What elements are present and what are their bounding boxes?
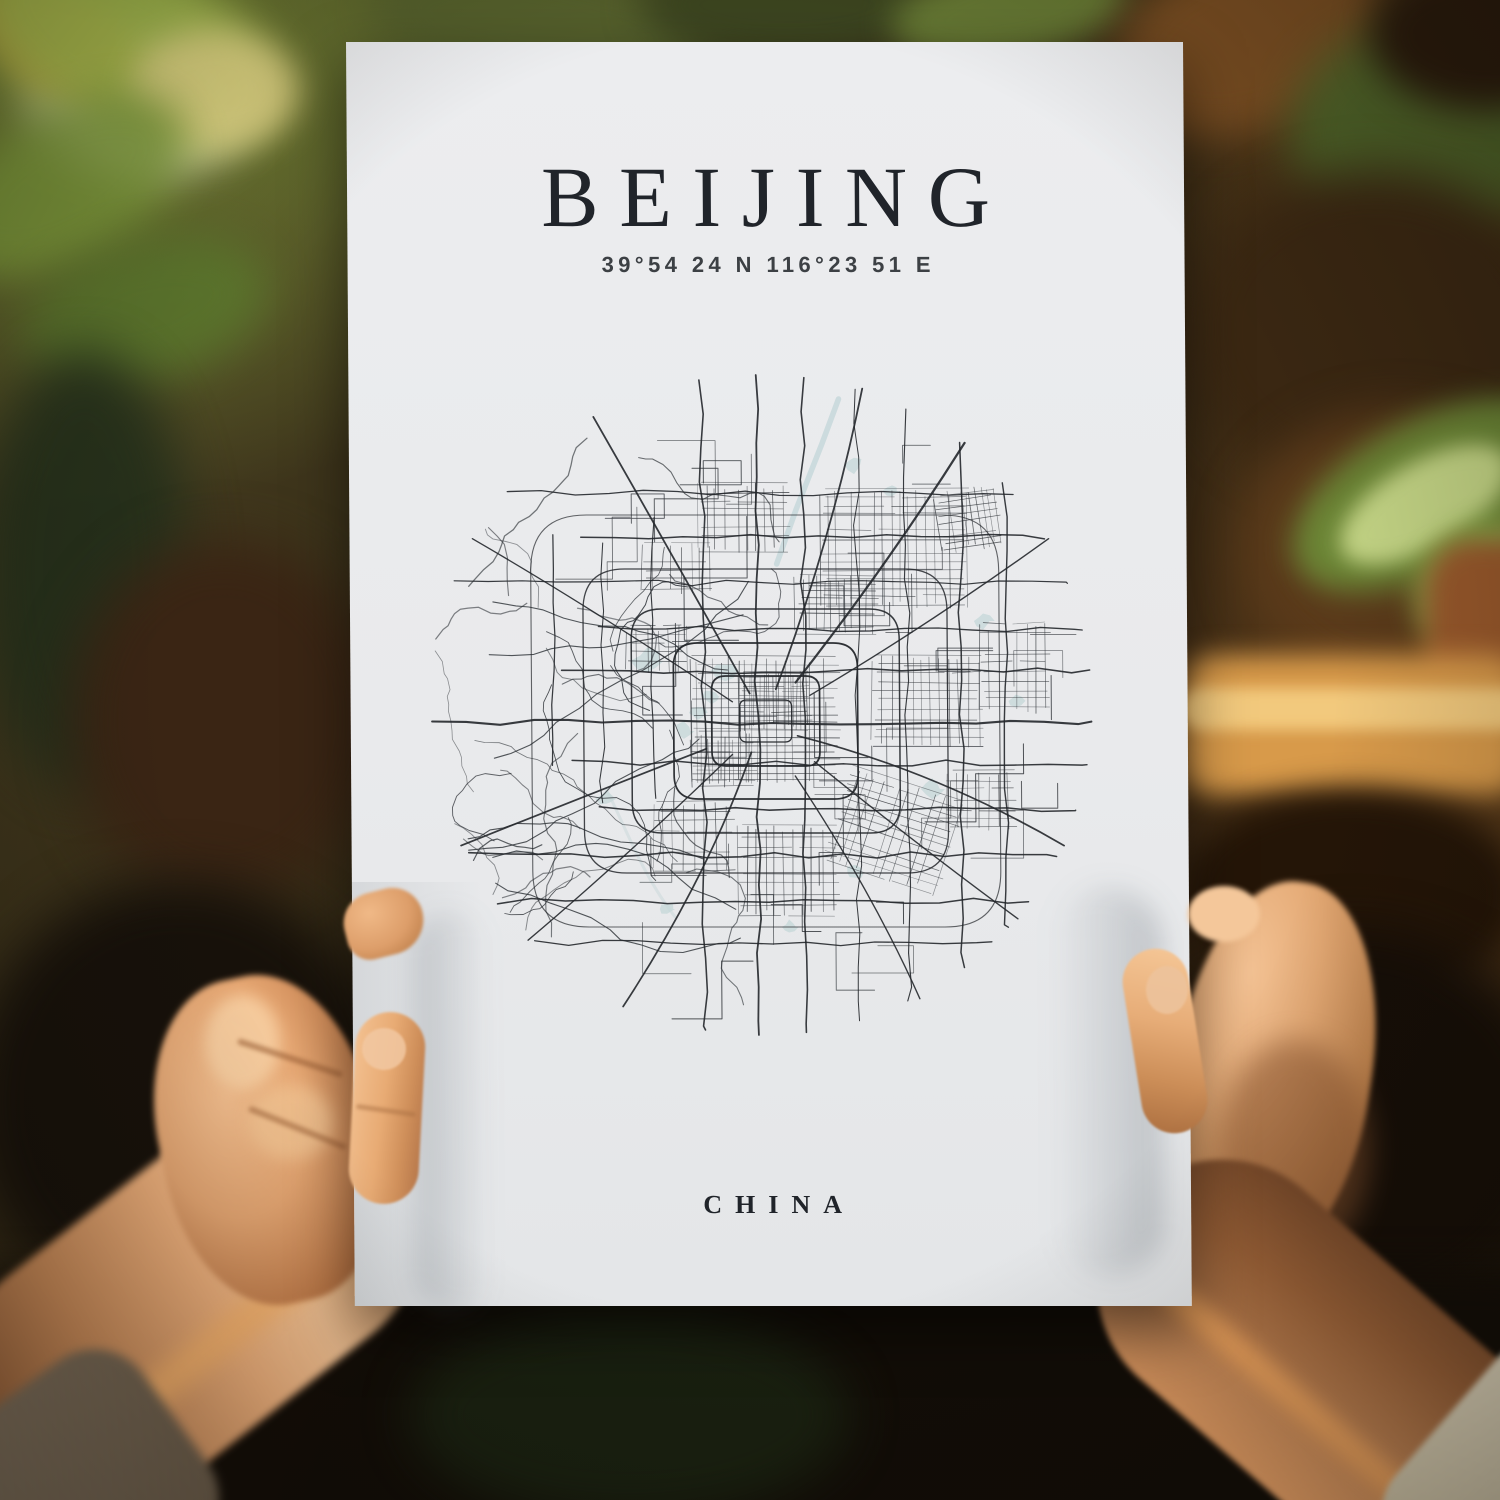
left-thumbnail xyxy=(362,1028,406,1070)
right-knuckle-highlight xyxy=(1188,886,1260,942)
poster-coordinates: 39°54 24 N 116°23 51 E xyxy=(347,254,1184,276)
right-thumbnail xyxy=(1146,966,1188,1014)
city-map-svg xyxy=(423,369,1100,1041)
photo-scene: BEIJING 39°54 24 N 116°23 51 E CHINA xyxy=(0,0,1500,1500)
poster-title: BEIJING xyxy=(347,154,1185,240)
city-map xyxy=(423,369,1100,1041)
map-poster: BEIJING 39°54 24 N 116°23 51 E CHINA xyxy=(346,42,1192,1306)
table-edge-highlight xyxy=(1182,688,1500,730)
chair-blur-left xyxy=(70,540,380,900)
